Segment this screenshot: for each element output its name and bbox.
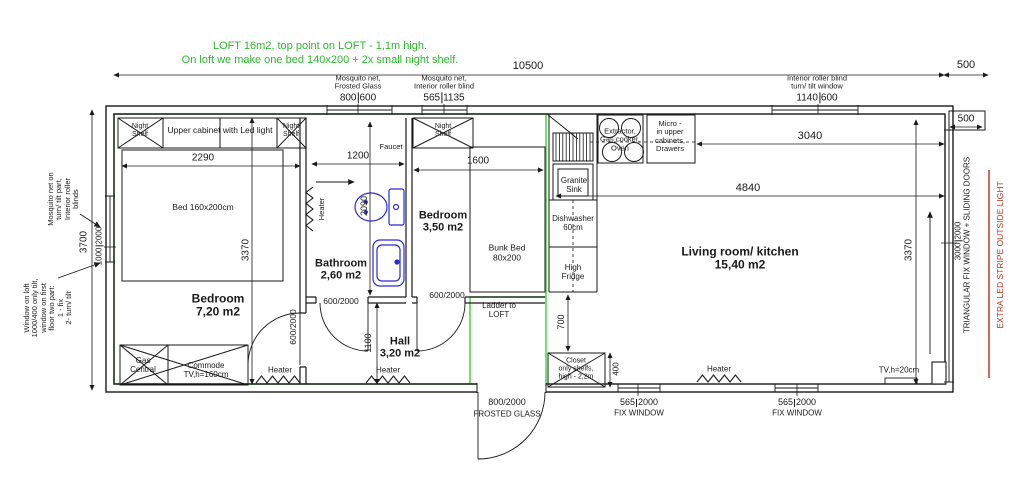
heater-label-hall: Heater [376,367,400,376]
dim-tick [819,92,820,103]
dim-tick [954,241,962,242]
faucet-label: Faucet [380,143,403,151]
dim-bathroom-width: 1200 [347,150,369,161]
bunk-bed-label: Bunk Bed 80x200 [489,243,526,262]
entry-door-opening [477,383,546,393]
pillar [932,362,946,384]
fix-window-1-dims: 5652000 [620,397,658,407]
fridge-label: High Fridge [562,264,585,282]
dim-tick [358,92,359,103]
dim-bedroom2-width: 1600 [467,155,489,166]
triangular-window-note: TRIANGULAR FIX WINDOW + SLIDING DOORS [964,157,973,333]
room-bedroom1: Bedroom 7,20 m2 [192,293,245,320]
dimension-lines [92,75,988,396]
mosquito-note-arrow [80,214,100,227]
heaters [256,187,741,383]
room-living: Living room/ kitchen 15,40 m2 [681,246,798,273]
heater-label-bedroom: Heater [268,367,292,376]
dim-gap-700: 700 [556,314,566,329]
bathroom-door-size: 600/2000 [323,297,358,307]
left-window-dims: 10002000 [95,227,104,266]
loft-note-line1: LOFT 16m2, top point on LOFT - 1,1m high… [213,40,427,52]
heater-bathroom [306,187,313,231]
mosquito-note: Mosquito net on turn/ tilt part, Interio… [47,172,81,225]
dim-kitchen-run: 3040 [798,130,822,142]
heater-hall [366,376,410,383]
ladder-label: Ladder to LOFT [482,302,516,320]
fix-window-2-dims: 5652000 [778,397,816,407]
heater-label-living: Heater [707,366,731,375]
toilet-tank [389,189,404,225]
granite-sink-label: Granite Sink [561,177,587,195]
bedroom2-door [417,303,465,351]
dim-tick [794,399,795,407]
entry-door-glass: FROSTED GLASS [473,411,540,420]
dim-toilet: 2090 [359,196,369,216]
dim-bedroom-height: 3370 [240,239,251,261]
night-shelf-2-label: Night Shelf [283,123,299,139]
commode-label: Commode TV,h=160cm [184,362,229,380]
bed-label: Bed 160x200cm [172,203,233,213]
night-shelf-1-label: Night Shelf [132,123,148,139]
entry-door-size: 800/2000 [488,397,526,407]
closet-label: Closet only shelfs, high - 2,2m [558,357,593,380]
night-shelf-3-label: Night Shelf [435,123,451,139]
extractor-label: Extractor, Gas cooker, Oven [600,127,640,152]
heater-living [697,375,741,382]
tv-label: TV,h=20cm [879,367,919,376]
bed-outline [122,150,283,281]
dim-living-height: 3370 [903,239,914,261]
room-bedroom2: Bedroom 3,50 m2 [419,210,467,235]
room-bathroom: Bathroom 2,60 m2 [315,258,367,283]
bunk-bed-outline [470,147,545,292]
heater-bedroom [256,376,300,383]
heater-label-bathroom: Heater [318,198,326,221]
bathroom-door [320,303,368,351]
dim-left-height: 3700 [78,231,89,253]
loft-note-line2: On loft we make one bed 140x200 + 2x sma… [182,54,459,66]
floor-plan: LOFT 16m2, top point on LOFT - 1,1m high… [0,0,1024,490]
dishwasher-label: Dishwasher 60cm [552,215,594,233]
room-hall: Hall 3,20 m2 [380,336,420,361]
window-a-note: Mosquito net, Frosted Glass [335,75,382,92]
dim-tick [636,399,637,407]
led-stripe-note: EXTRA LED STRIPE OUTSIDE LIGHT [996,181,1006,328]
window-c-dims: 1140600 [796,92,837,103]
fix-window-1-label: FIX WINDOW [614,410,664,419]
dim-total-width: 10500 [513,60,544,72]
window-a-dims: 800600 [340,92,376,103]
dim-tick [441,92,442,103]
fix-window-2-label: FIX WINDOW [772,410,822,419]
window-loft-note: Window on loft 1000/400 only tilt, windo… [23,279,73,338]
upper-cabinet-label: Upper cabinet with Led light [168,126,273,136]
dim-corner: 500 [958,113,975,124]
bedroom1-door-size: 600/2000 [289,309,299,344]
dim-closet-depth: 400 [613,362,622,375]
window-b-dims: 5651135 [423,92,464,103]
dim-living-width: 4840 [736,182,760,194]
gas-central-label: Gas Central [130,357,156,375]
dim-bedroom-width: 2290 [192,152,214,163]
dim-tick [95,246,103,247]
dim-hall-height: 1100 [363,333,373,352]
micro-label: Micro - in upper cabinets, Drawers [655,120,685,154]
dim-right-extension: 500 [957,59,975,71]
window-c-note: Interior roller blind turn/ tilt window [787,75,847,92]
window-b-note: Mosquito net, Interior roller blind [414,75,474,92]
tv-bench [885,378,917,384]
bedroom2-door-size: 600/2000 [429,291,464,301]
